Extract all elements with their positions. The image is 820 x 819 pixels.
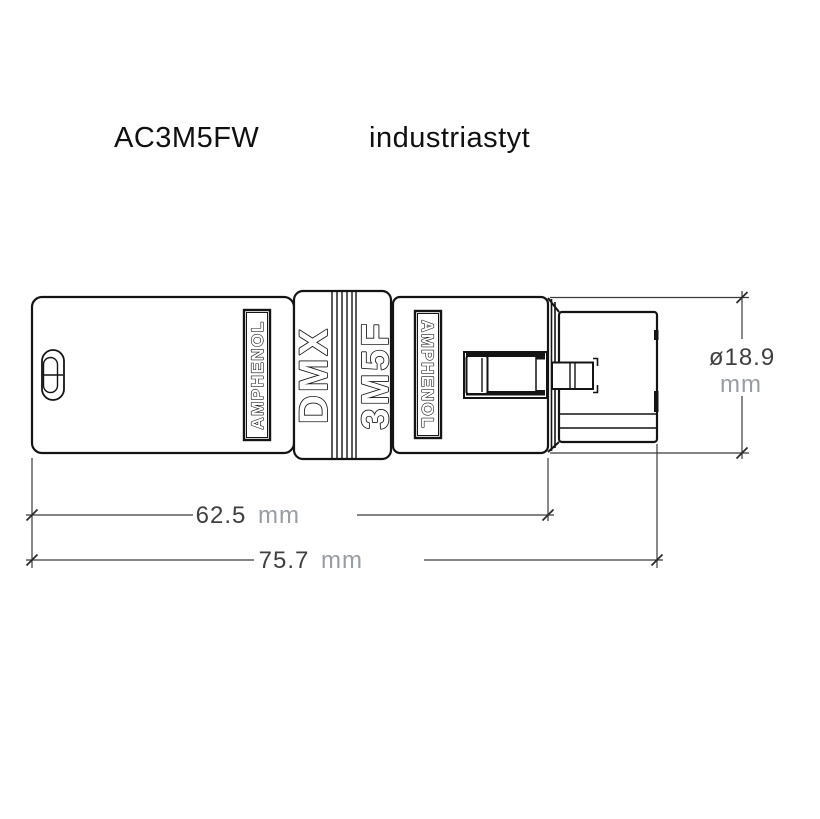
total-length-value: 75.7	[259, 547, 310, 574]
latch-button	[467, 356, 488, 394]
style-title: industriastyt	[369, 122, 530, 154]
latch-hook-upper	[536, 355, 545, 360]
total-length-unit: mm	[321, 547, 363, 574]
diameter-unit: mm	[720, 371, 762, 398]
latch-tab	[552, 359, 598, 393]
body-length-unit: mm	[258, 502, 300, 529]
type-marking-text: 3M5F	[355, 320, 397, 429]
keyway-notch-upper	[654, 330, 659, 340]
brand-label-rear: AMPHENOL	[244, 310, 270, 440]
strain-relief-slot	[42, 350, 64, 400]
dimension-total-length: 75.7 mm	[26, 444, 663, 574]
latch-slot	[464, 352, 547, 398]
diameter-value: ø18.9	[709, 344, 775, 371]
body-length-value: 62.5	[196, 502, 247, 529]
latch-hook-lower	[536, 390, 545, 395]
connector-technical-drawing: AC3M5FW industriastyt AMPHENOL	[0, 0, 820, 819]
dmx-marking-text: DMX	[292, 326, 336, 424]
brand-label-front: AMPHENOL	[415, 311, 441, 438]
connector-outline: AMPHENOL DMX 3M5F	[32, 291, 659, 459]
marking-sleeve: DMX 3M5F	[292, 291, 397, 459]
technical-drawing-page: AC3M5FW industriastyt AMPHENOL	[0, 0, 820, 819]
brand-text-rear: AMPHENOL	[248, 320, 267, 429]
keyway-notch-lower	[654, 391, 659, 412]
model-title: AC3M5FW	[114, 122, 259, 154]
brand-text-front: AMPHENOL	[418, 320, 437, 429]
